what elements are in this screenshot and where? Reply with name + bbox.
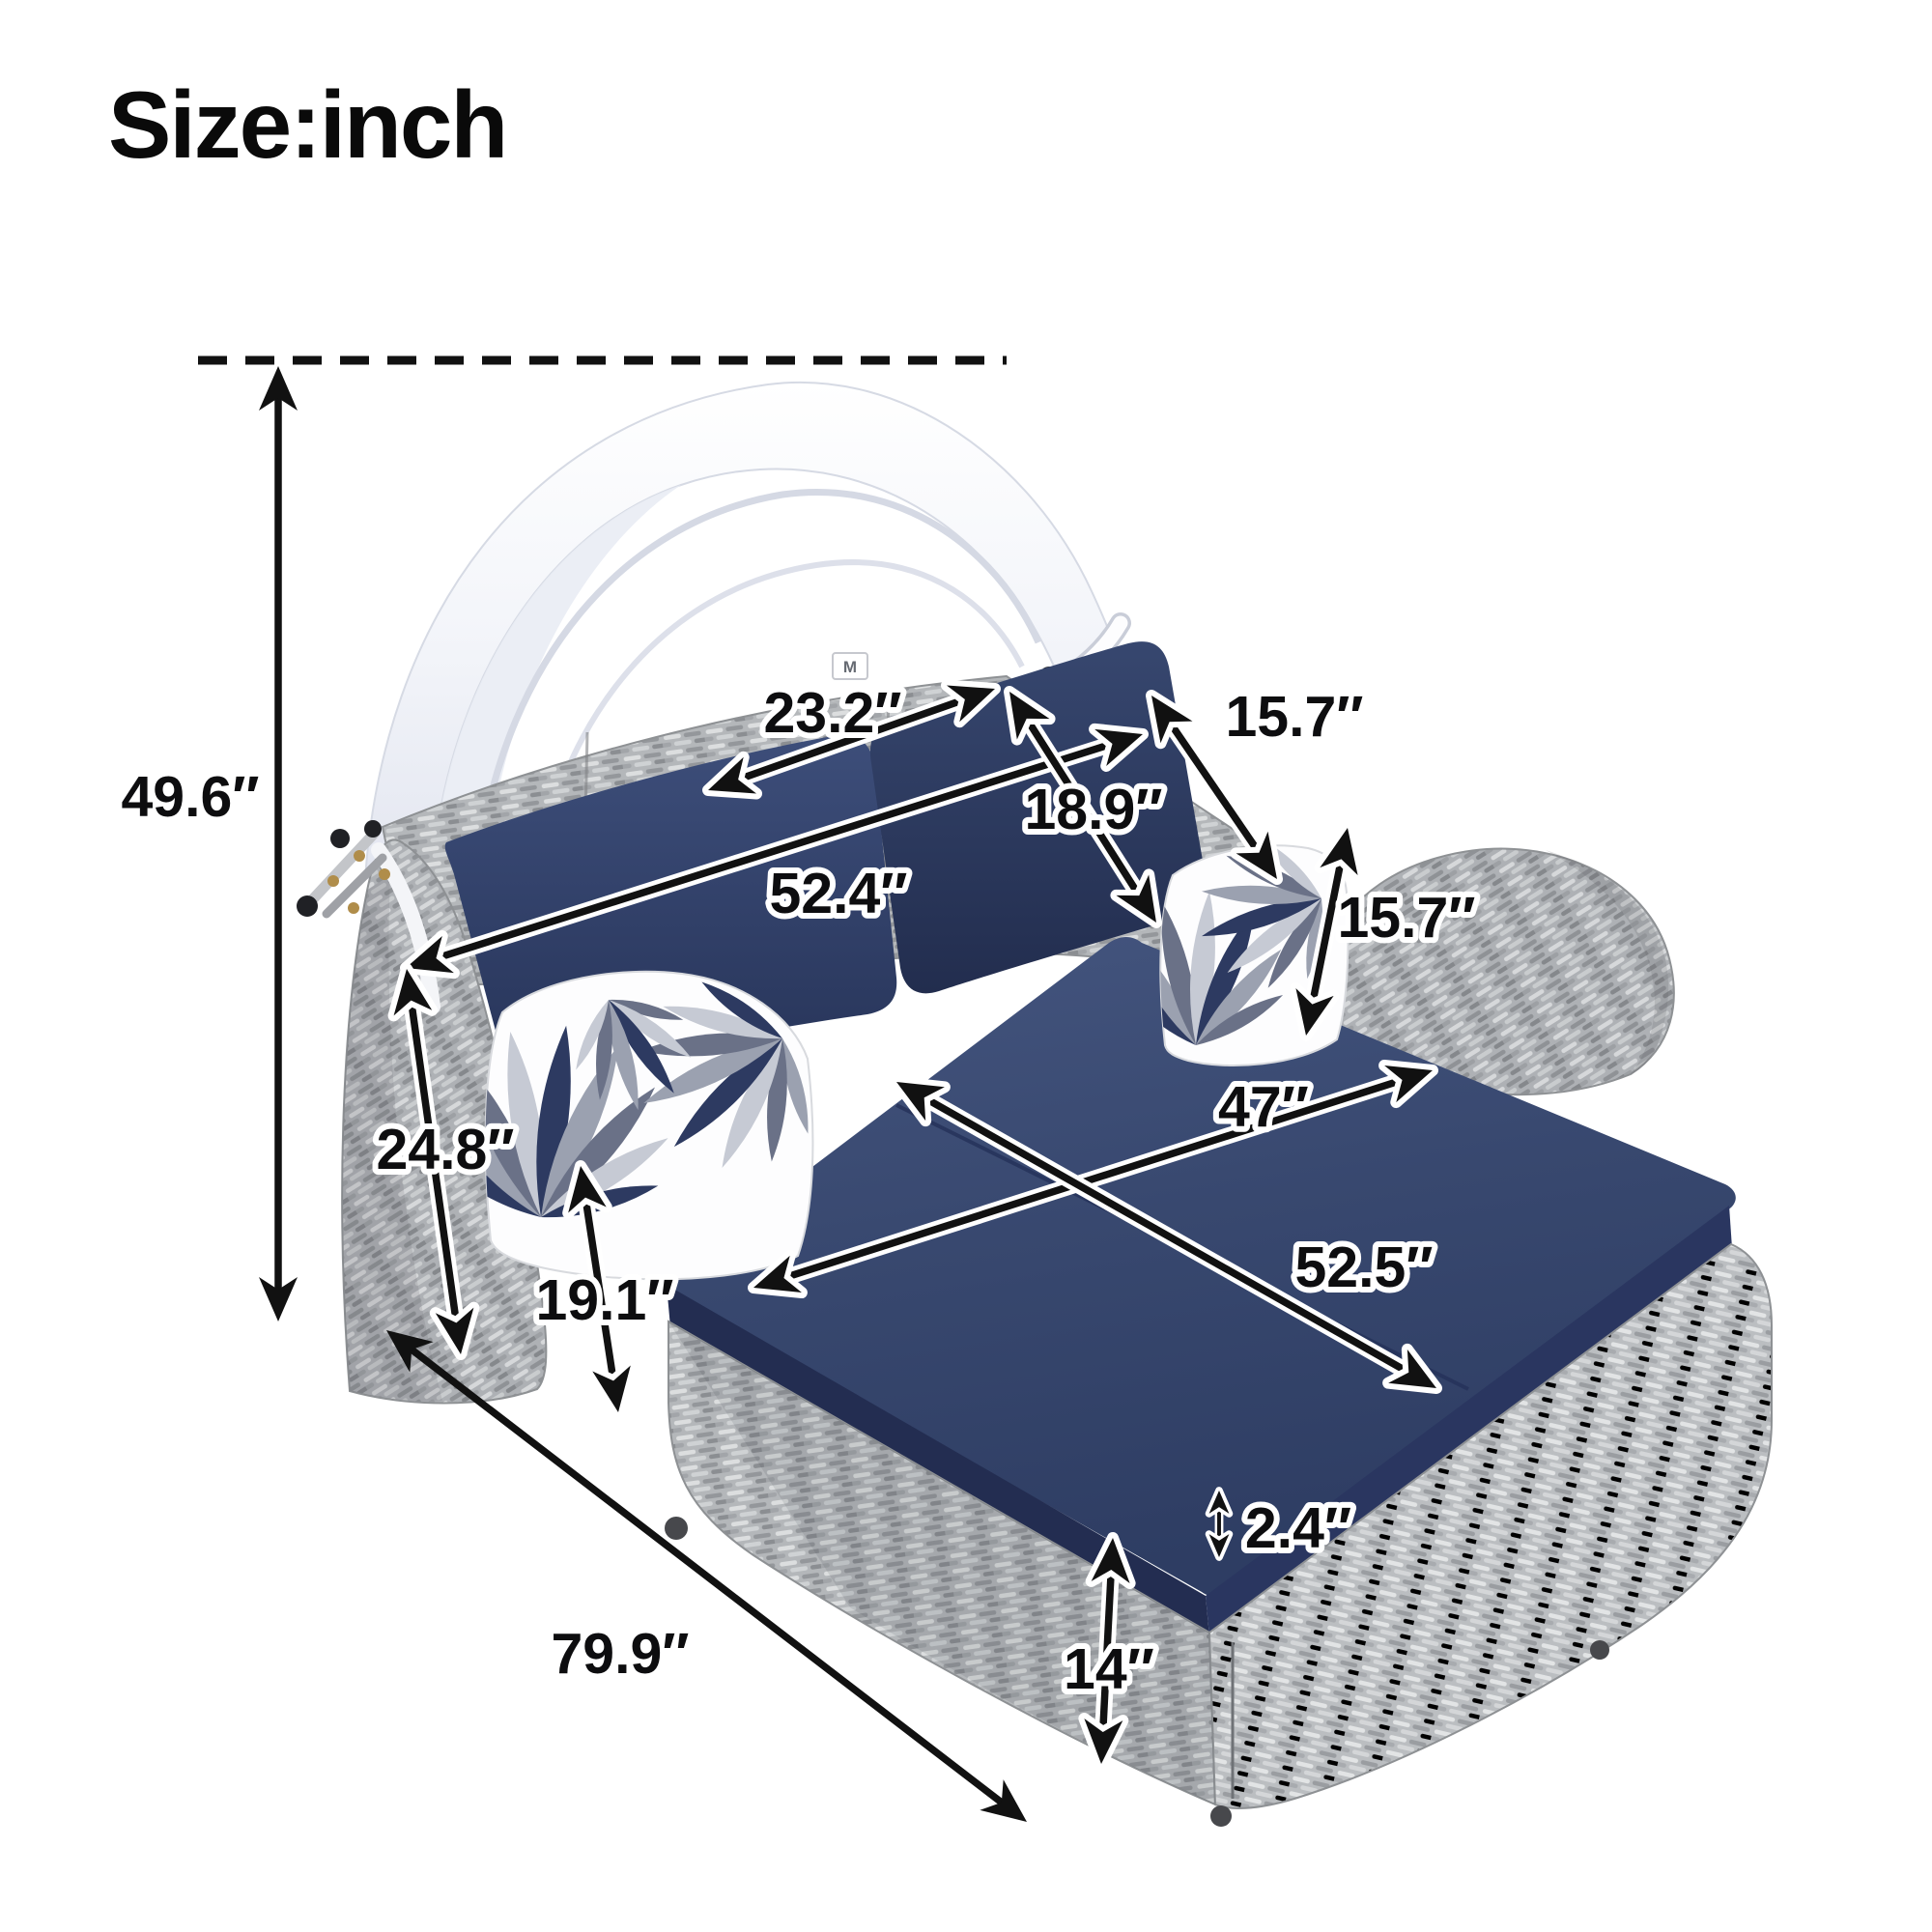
dim-label-back-right-depth: 18.9″ (1024, 778, 1162, 841)
dim-label-back-left-width: 23.2″ (763, 681, 901, 745)
dim-label-seat-length: 52.5″ (1294, 1236, 1433, 1299)
base-foot-2 (1210, 1805, 1232, 1827)
dim-label-pillow-height: 15.7″ (1337, 886, 1475, 950)
arrow-overall-height (259, 366, 298, 1321)
dim-label-overall-length: 79.9″ (551, 1622, 689, 1686)
dim-label-backrest-width: 52.4″ (769, 862, 907, 925)
canopy-size-tag-label: M (843, 658, 857, 676)
dim-label-overall-height: 49.6″ (121, 765, 259, 829)
arrowhead (1320, 824, 1366, 875)
dim-label-cushion-thickness: 2.4″ (1245, 1496, 1351, 1560)
base-foot-1 (665, 1517, 688, 1540)
size-diagram-canvas: M (0, 0, 1932, 1932)
dim-label-base-height: 14″ (1064, 1637, 1154, 1701)
dim-label-armrest-height: 24.8″ (376, 1118, 514, 1181)
dim-label-side-height: 19.1″ (535, 1268, 673, 1332)
dim-label-pillow-width: 15.7″ (1225, 685, 1363, 749)
base-foot-3 (1590, 1640, 1609, 1660)
arrowhead (592, 1366, 637, 1416)
dim-label-seat-width: 47″ (1218, 1075, 1309, 1139)
daybed-illustration: M (297, 383, 1772, 1827)
page-title: Size:inch (108, 71, 506, 178)
